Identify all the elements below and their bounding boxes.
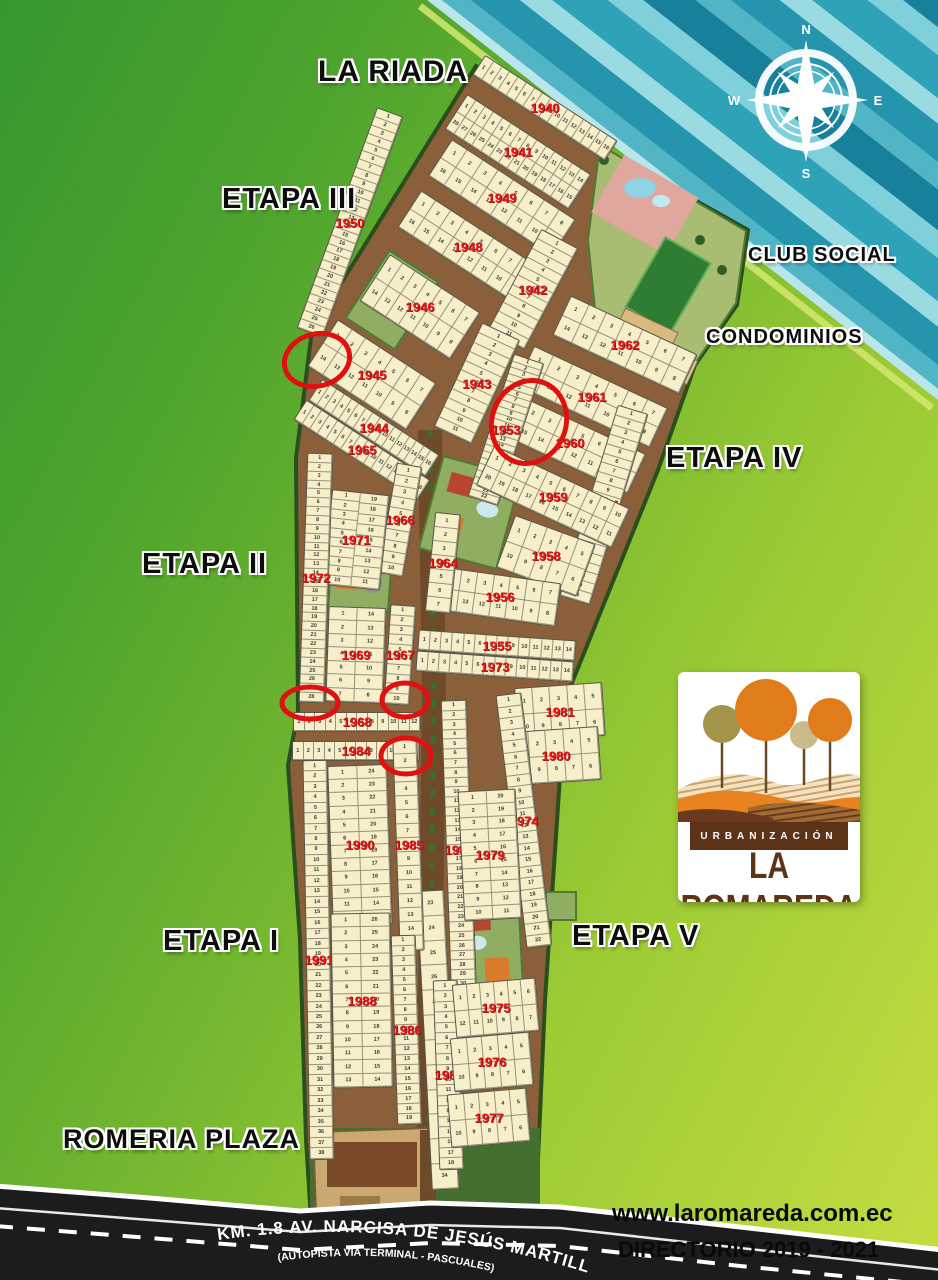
block-number: 1964 [429,556,458,571]
block-1988: 1234567891011121326252423222120191817161… [330,912,393,1088]
block-number: 1960 [556,436,585,451]
lot-cell: 2 [305,713,316,731]
logo-art [678,672,860,822]
logo-la-romareda-name: LA ROMAREDA [678,846,860,903]
area-label-la-riada: LA RIADA [318,55,468,89]
lot-cell: 15 [363,1059,392,1073]
lot-cell: 10 [332,885,361,899]
block-number: 1986 [392,1023,421,1038]
lot-cell: 17 [360,857,389,871]
lot-cell: 16 [361,870,390,884]
lot-cell: 7 [396,824,419,839]
lot-cell: 5 [580,727,599,754]
block-1979: 12345678910201918171615141312111979 [458,789,523,922]
lot-cell: 26 [360,913,389,927]
lot-cell: 36 [309,1127,332,1138]
lot-cell: 11 [334,1047,363,1061]
block-number: 1950 [336,215,365,230]
lot-cell: 9 [377,742,388,760]
block-number: 1981 [546,705,575,720]
block-1985: 1234567891011121314151985 [392,739,424,952]
lot-cell: 22 [526,933,551,947]
block-number: 1966 [386,513,415,528]
lot-cell: 21 [307,970,330,981]
lot-cell: 37 [310,1138,333,1149]
lot-cell: 27 [308,1033,331,1044]
lot-cell: 1 [393,740,416,755]
lot-cell: 5 [332,967,361,981]
lot-cell: 3 [328,634,356,648]
lot-cell: 15 [306,907,329,918]
lot-cell: 7 [304,824,327,835]
lot-cell: 4 [326,713,337,731]
directory-title: DIRECTORIO 2019 - 2021 [618,1237,879,1263]
lot-cell: 11 [305,866,328,877]
lot-cell: 1 [294,713,305,731]
lot-cell: 3 [303,782,326,793]
block-1968: 1234567891011121968 [293,712,421,732]
lot-cell: 4 [325,742,336,760]
block-1975: 1234561211109871975 [452,977,540,1038]
lot-cell: 10 [397,866,420,881]
block-number: 1969 [342,648,371,663]
lot-cell: 8 [331,858,360,872]
lot-cell: 7 [523,1004,539,1031]
lot-cell: 29 [308,1054,331,1065]
lot-cell: 9 [355,675,383,689]
block-number: 1990 [346,838,375,853]
lot-cell: 4 [304,792,327,803]
block-number: 1945 [358,368,387,383]
lot-cell: 34 [309,1106,332,1117]
block-number: 1942 [519,282,548,297]
lot-cell: 7 [326,688,354,702]
lot-cell: 10 [305,855,328,866]
lot-cell: 12 [305,876,328,887]
block-number: 1959 [539,490,568,505]
lot-cell: 7 [426,597,451,613]
lot-cell: 9 [304,845,327,856]
lot-cell: 32 [309,1085,332,1096]
lot-cell: 14 [561,661,573,681]
block-number: 1985 [394,838,423,853]
lot-cell: 24 [307,1002,330,1013]
block-number: 1967 [386,648,415,663]
lot-cell: 2 [332,927,361,941]
lot-cell: 5 [584,683,603,710]
lot-cell: 1 [331,914,360,928]
lot-cell: 6 [395,810,418,825]
lot-cell: 18 [439,1158,462,1169]
lot-cell: 3 [332,940,361,954]
lot-cell: 2 [329,620,357,634]
area-label-etapa-iv: ETAPA IV [666,442,802,475]
lot-cell: 5 [327,661,355,675]
lot-cell: 5 [330,819,359,833]
block-number: 1940 [531,101,560,116]
lot-cell: 26 [308,1023,331,1034]
lot-cell: 13 [305,886,328,897]
block-1976: 123451098761976 [450,1032,534,1093]
lot-cell: 8 [304,834,327,845]
lot-cell: 18 [362,1019,391,1033]
lot-cell: 23 [361,953,390,967]
block-1967: 123456789101967 [384,604,417,706]
lot-cell: 18 [306,939,329,950]
lot-cell: 14 [362,897,391,911]
lot-cell: 35 [309,1117,332,1128]
block-number: 1991 [304,953,333,968]
lot-cell: 6 [327,674,355,688]
area-label-condominios: CONDOMINIOS [706,326,863,349]
block-number: 1975 [482,1001,511,1016]
block-number: 1944 [360,421,389,436]
lot-cell: 7 [541,582,560,605]
lot-cell: 11 [399,713,410,731]
lot-cell: 3 [394,768,417,783]
block-number: 1988 [348,993,377,1008]
lot-cell: 5 [395,796,418,811]
lot-cell: 9 [397,852,420,867]
block-number: 1984 [342,744,371,759]
lot-cell: 9 [333,1020,362,1034]
lot-cell: 6 [515,1059,533,1086]
lot-cell: 4 [394,782,417,797]
lot-cell: 5 [304,803,327,814]
lot-cell: 22 [358,791,387,805]
lot-cell: 22 [307,981,330,992]
block-number: 1968 [343,715,372,730]
block-1986: 123456789101112131415161718191986 [390,935,422,1126]
lot-cell: 13 [357,621,385,635]
lot-cell: 1 [329,607,357,621]
block-number: 1965 [348,443,377,458]
lot-blocks-layer: 1234567891011121314151619401234567891011… [0,0,938,1280]
lot-cell: 17 [363,1033,392,1047]
lot-cell: 8 [354,689,382,703]
lot-cell: 11 [493,905,522,919]
lot-cell: 24 [357,765,386,779]
block-number: 1972 [302,571,331,586]
lot-cell: 10 [355,662,383,676]
lot-cell: 17 [306,928,329,939]
area-label-etapa-v: ETAPA V [572,920,699,953]
block-1971: 123456789101918171615141312111971 [322,489,390,591]
block-number: 1955 [483,638,512,653]
website-text: www.laromareda.com.ec [612,1200,893,1228]
lot-cell: 4 [332,953,361,967]
logo-tree-orange-small [808,698,852,742]
lot-cell: 2 [393,754,416,769]
lot-cell: 3 [329,792,358,806]
lot-cell: 14 [357,608,385,622]
lot-cell: 25 [307,1012,330,1023]
block-number: 1958 [532,549,561,564]
block-number: 1962 [611,338,640,353]
block-number: 1946 [406,300,435,315]
lot-cell: 21 [362,980,391,994]
lot-cell: 2 [303,771,326,782]
lot-cell: 10 [389,713,400,731]
lot-cell: 31 [309,1075,332,1086]
lot-cell: 8 [333,1007,362,1021]
lot-cell: 12 [410,713,421,731]
block-number: 1980 [542,749,571,764]
block-number: 1948 [454,240,483,255]
lot-cell: 38 [310,1148,333,1159]
lot-cell: 9 [378,713,389,731]
lot-cell: 21 [359,805,388,819]
lot-cell: 2 [304,742,315,760]
lot-cell: 15 [361,884,390,898]
lot-cell: 6 [582,753,601,780]
lot-cell: 30 [308,1064,331,1075]
area-label-etapa-iii: ETAPA III [222,183,356,216]
block-number: 1949 [488,191,517,206]
lot-cell: 19 [397,1114,420,1125]
lot-cell: 6 [304,813,327,824]
block-number: 1979 [476,848,505,863]
lot-cell: 4 [330,806,359,820]
lot-cell: 13 [334,1073,363,1087]
lot-cell: 23 [358,778,387,792]
lot-cell: 12 [334,1060,363,1074]
directory-map-page: KM. 1.8 AV. NARCISA DE JESÚS MARTILLO (A… [0,0,938,1280]
lot-cell: 20 [359,818,388,832]
area-label-etapa-ii: ETAPA II [142,548,267,581]
lot-cell: 28 [300,693,324,703]
lot-cell: 16 [363,1046,392,1060]
lot-cell: 23 [307,991,330,1002]
lot-cell: 1 [328,766,357,780]
lot-cell: 28 [308,1043,331,1054]
lot-cell: 24 [361,940,390,954]
lot-cell: 10 [385,693,410,704]
block-1969: 12345671413121110981969 [325,606,386,704]
block-1977: 123451098761977 [447,1088,531,1149]
lot-cell: 14 [563,640,575,660]
lot-cell: 5 [513,1033,531,1060]
lot-cell: 2 [329,779,358,793]
lot-cell: 3 [314,742,325,760]
block-number: 1973 [481,659,510,674]
block-number: 1956 [486,590,515,605]
lot-cell: 14 [363,1073,392,1087]
lot-cell: 9 [332,871,361,885]
lot-cell: 10 [334,1033,363,1047]
la-romareda-logo: URBANIZACIÓN LA ROMAREDA [678,672,860,902]
logo-tree-orange-large [735,679,797,741]
area-label-romeria-plaza: ROMERIA PLAZA [63,1124,300,1155]
lot-cell: 3 [315,713,326,731]
block-number: 1971 [342,533,371,548]
lot-cell: 10 [465,906,494,920]
lot-cell: 33 [309,1096,332,1107]
area-label-etapa-i: ETAPA I [163,925,279,958]
lot-cell: 11 [333,898,362,912]
lot-cell: 16 [306,918,329,929]
lot-cell: 6 [333,980,362,994]
block-1990: 1234567891011122423222120191817161514131… [327,764,393,926]
lot-cell: 6 [512,1115,530,1142]
lot-cell: 5 [510,1089,528,1116]
block-number: 1977 [475,1111,504,1126]
lot-cell: 25 [361,926,390,940]
lot-cell: 22 [361,966,390,980]
lot-cell: 11 [351,576,380,589]
lot-cell: 12 [398,894,421,909]
lot-cell: 1 [303,761,326,772]
lot-cell: 14 [305,897,328,908]
lot-cell: 6 [521,979,537,1006]
lot-cell: 8 [538,603,557,626]
lot-cell: 11 [398,880,421,895]
block-number: 1976 [478,1055,507,1070]
block-number: 1943 [463,376,492,391]
block-number: 1961 [578,390,607,405]
block-number: 1941 [504,145,533,160]
lot-cell: 1 [293,742,304,760]
area-label-club-social: CLUB SOCIAL [748,244,896,267]
lot-cell: 13 [399,908,422,923]
block-number: 1953 [492,423,521,438]
